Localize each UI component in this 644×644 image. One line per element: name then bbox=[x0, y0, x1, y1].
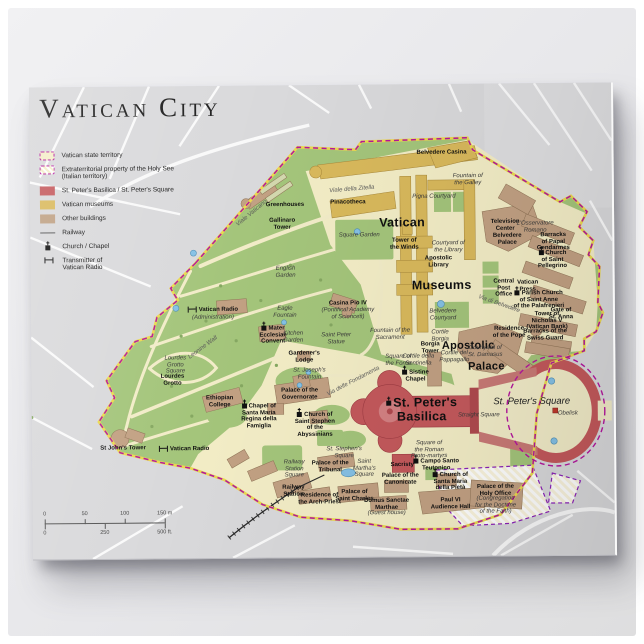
scale-label-feet: 0 bbox=[43, 530, 46, 536]
church-icon bbox=[45, 245, 50, 250]
legend-label: St. Peter's Basilica / St. Peter's Squar… bbox=[62, 185, 174, 194]
legend-label: Vatican museums bbox=[62, 200, 113, 209]
scale-tick bbox=[85, 519, 86, 524]
scale-tick bbox=[105, 524, 106, 529]
map-plaque: Vatican City Vatican state territoryExtr… bbox=[29, 82, 617, 560]
legend-label: Railway bbox=[62, 228, 85, 237]
church-swatch bbox=[40, 242, 55, 251]
photo-backdrop: Vatican City Vatican state territoryExtr… bbox=[8, 8, 636, 636]
legend-label: Other buildings bbox=[62, 214, 106, 223]
transmitter-swatch bbox=[40, 256, 55, 265]
basilica-swatch bbox=[40, 186, 55, 195]
legend-label: Church / Chapel bbox=[62, 242, 109, 251]
scale-label-meters: 150 m bbox=[157, 510, 172, 516]
legend-item: Vatican state territory bbox=[40, 150, 250, 161]
legend-label: Transmitter of Vatican Radio bbox=[62, 256, 102, 272]
legend-item: Other buildings bbox=[40, 213, 250, 224]
extraterritorial-swatch bbox=[40, 165, 55, 174]
legend-item: Vatican museums bbox=[40, 199, 250, 210]
legend-label: Extraterritorial property of the Holy Se… bbox=[62, 164, 174, 181]
scale-label-feet: 500 ft. bbox=[157, 529, 172, 535]
scale-label-meters: 0 bbox=[43, 511, 46, 517]
scale-label-meters: 100 bbox=[120, 511, 129, 517]
legend-item: Church / Chapel bbox=[40, 241, 250, 252]
map-title: Vatican City bbox=[39, 92, 221, 125]
scale-tick bbox=[165, 523, 166, 528]
legend-item: Railway bbox=[40, 227, 250, 238]
scale-tick bbox=[45, 524, 46, 529]
legend-item: Extraterritorial property of the Holy Se… bbox=[40, 164, 250, 182]
legend-item: St. Peter's Basilica / St. Peter's Squar… bbox=[40, 185, 250, 196]
scale-label-meters: 50 bbox=[82, 511, 88, 517]
scale-bar: 050100150 m0250500 ft. bbox=[43, 510, 173, 537]
scale-label-feet: 250 bbox=[100, 530, 109, 536]
legend: Vatican state territoryExtraterritorial … bbox=[40, 150, 251, 278]
legend-item: Transmitter of Vatican Radio bbox=[40, 255, 250, 273]
transmitter-icon bbox=[44, 257, 53, 263]
buildings-swatch bbox=[40, 214, 55, 223]
museums-swatch bbox=[40, 200, 55, 209]
railway-swatch bbox=[40, 228, 55, 237]
territory-swatch bbox=[40, 151, 55, 160]
scale-tick bbox=[125, 519, 126, 524]
legend-label: Vatican state territory bbox=[62, 151, 123, 160]
